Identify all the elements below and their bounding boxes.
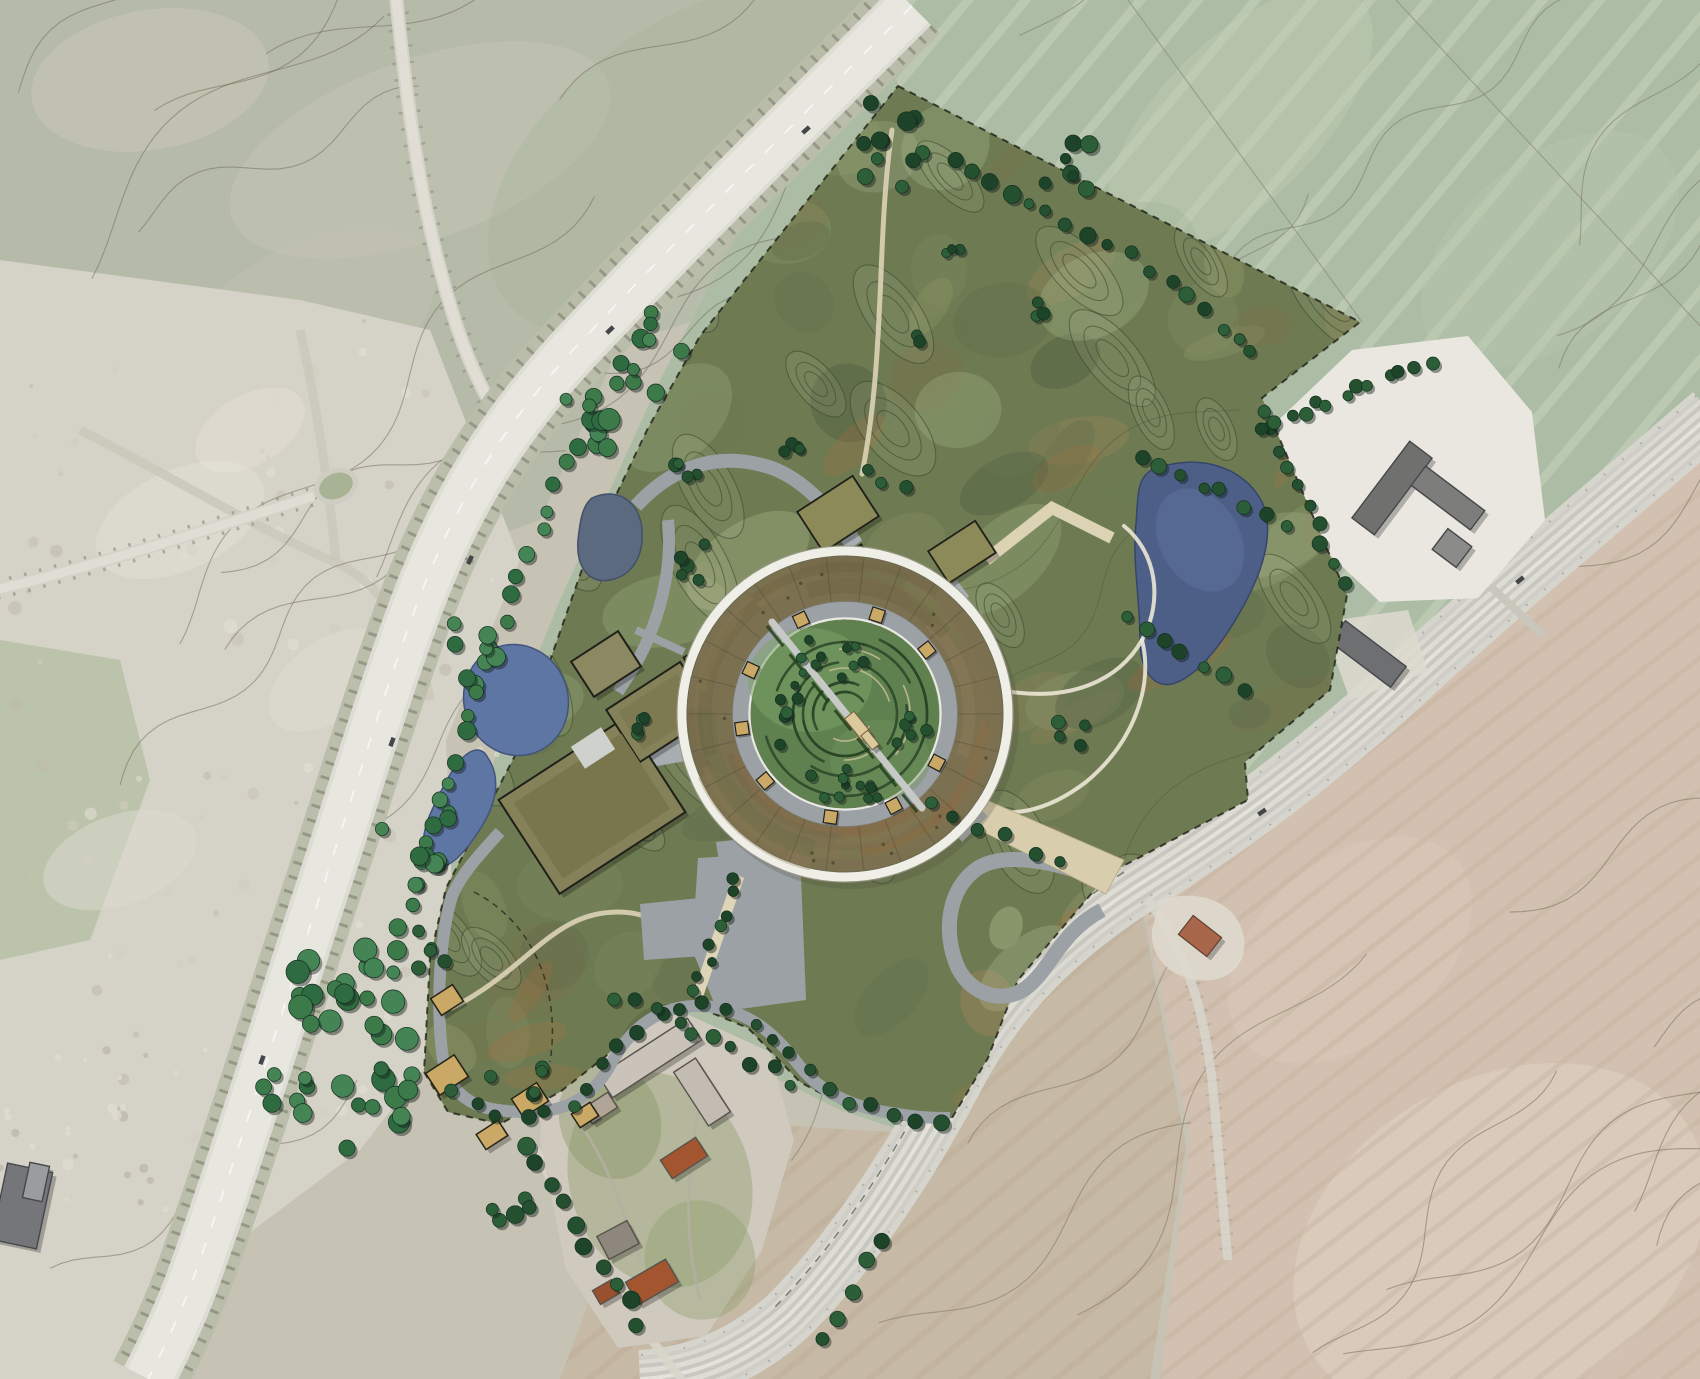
site-plan-map bbox=[0, 0, 1700, 1379]
map-art bbox=[0, 0, 1700, 1379]
site-plan-svg bbox=[0, 0, 1700, 1379]
pond-northwest bbox=[578, 494, 642, 581]
parking-west-spur bbox=[640, 898, 704, 960]
